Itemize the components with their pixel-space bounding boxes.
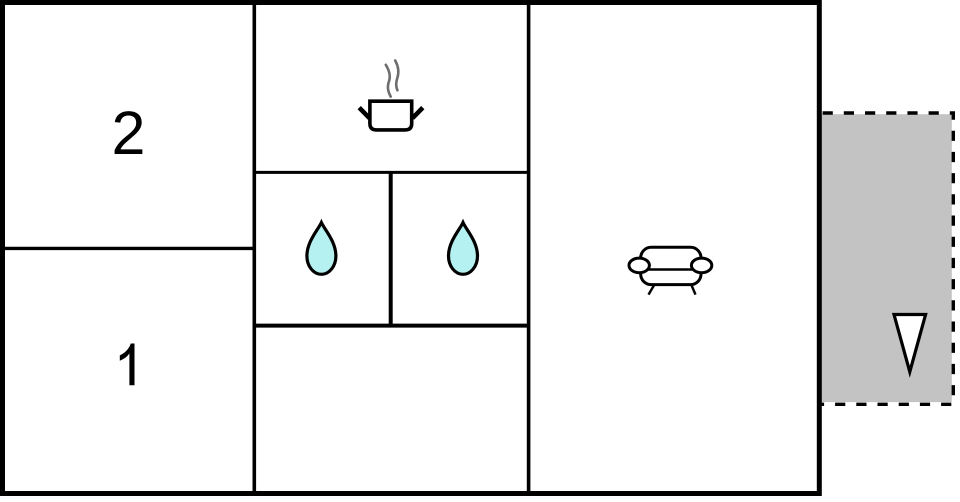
svg-text:2: 2 [112,99,146,167]
